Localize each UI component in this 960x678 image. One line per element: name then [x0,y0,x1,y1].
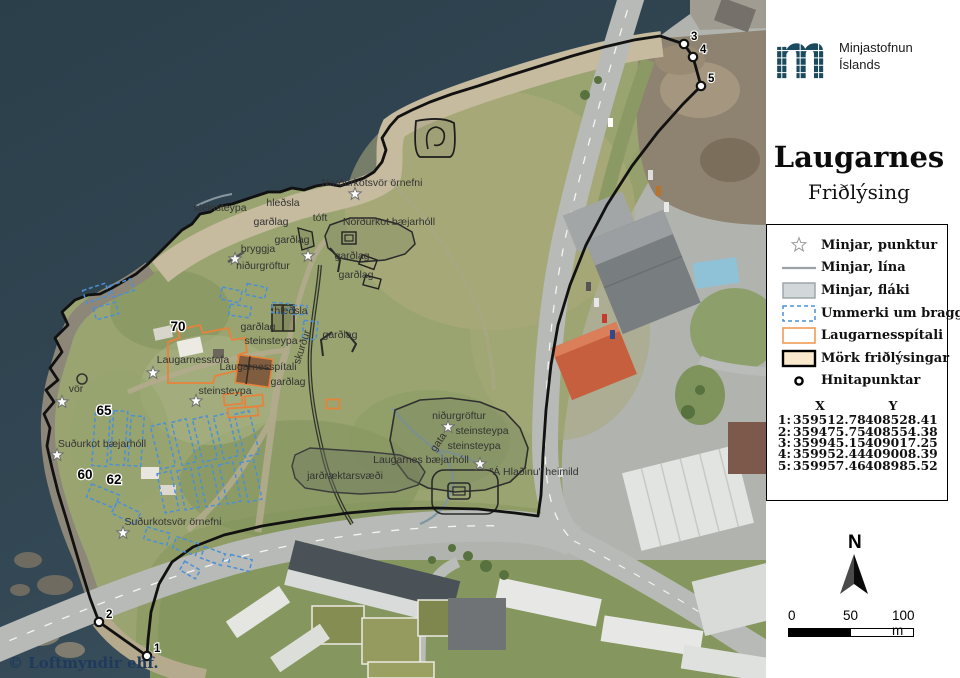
hnitapunktur-number: 5 [708,73,715,85]
legend-item-hnitapunktar: Hnitapunktar [767,370,947,393]
map-label: garðlag [338,269,373,281]
map-label: garðlag [270,376,305,388]
legend-item-lina: Minjar, lína [767,257,947,280]
legend: Minjar, punktur Minjar, lína Minjar, flá… [766,224,948,501]
map-label: garðlag [322,329,357,341]
line-icon [777,265,821,271]
map-label: steinsteypa [198,385,251,397]
map-label: garðlag [253,216,288,228]
agency-logo: Minjastofnun Íslands [774,34,913,80]
map-label: bryggja [241,243,276,255]
map-label: niðurgröftur [432,410,486,422]
hnitapunktur-marker [689,53,697,61]
star-icon [777,236,821,254]
coordinate-row: 5:359957.46408985.52 [767,460,947,471]
coordinate-table: XY 1:359512.78408528.41 2:359475.7540855… [767,399,947,471]
map-label: hleðsla [274,305,307,317]
boundary-icon [777,349,821,368]
map-label: Laugarnesstofa [157,354,230,366]
site-number: 60 [77,467,92,482]
hnitapunktur-marker [680,40,688,48]
scale-bar-rect [788,628,914,637]
legend-item-punktur: Minjar, punktur [767,234,947,257]
minjastofnun-logo-icon [774,34,830,80]
coordinate-header: XY [767,399,947,412]
map-sheet: Norðurkotsvör örnefnihleðslasteinsteypag… [0,0,960,678]
map-label: Laugarnesspítali [219,361,296,373]
map-label: Norðurkot bæjarhóll [343,216,435,228]
north-arrow: N [826,530,886,604]
map-label: garðlag [274,234,309,246]
map-label: steinsteypa [455,425,508,437]
map-label: Norðurkotsvör örnefni [322,177,423,189]
aerial-map: Norðurkotsvör örnefnihleðslasteinsteypag… [0,0,768,678]
legend-item-flaki: Minjar, fláki [767,279,947,302]
site-number: 62 [106,472,121,487]
dashed-blue-icon [777,305,821,322]
polygon-icon [777,282,821,299]
hnitapunktur-number: 3 [691,31,697,43]
legend-item-spitali: Laugarnesspítali [767,324,947,347]
legend-item-mork: Mörk friðlýsingar [767,347,947,370]
dirt-mound [700,138,760,182]
point-icon [777,375,821,387]
legend-item-bragga: Ummerki um bragga [767,302,947,325]
map-label: steinsteypa [447,440,500,452]
map-label: niðurgröftur [236,260,290,272]
orange-outline-icon [777,327,821,344]
map-label: garðlag [334,250,369,262]
hnitapunktur-marker [697,82,705,90]
map-label: Suðurkot bæjarhóll [58,438,146,450]
site-number: 70 [170,319,185,334]
copyright-text: © Loftmyndir ehf. [8,654,159,672]
page-title: Laugarnes [766,140,952,174]
map-label: "Á Hlaðinu" heimild [489,465,578,478]
info-panel: Minjastofnun Íslands Laugarnes Friðlýsin… [766,0,960,678]
map-label: Laugarnes bæjarhóll [373,454,469,466]
map-label: steinsteypa [244,335,297,347]
scale-bar: 0 50 100 m [788,608,920,644]
scale-ticks: 0 50 100 m [788,608,920,625]
map-label: Suðurkotsvör örnefni [125,516,222,528]
hnitapunktur-number: 4 [700,44,707,56]
map-label: tóft [313,212,328,224]
agency-name: Minjastofnun Íslands [839,40,913,74]
north-label: N [848,532,862,553]
map-label: garðlag [240,321,275,333]
hnitapunktur-marker [95,618,103,626]
site-number: 65 [96,403,112,418]
map-label: steinsteypa [193,202,246,214]
map-label: hleðsla [266,197,299,209]
map-label: vör [69,383,84,395]
hnitapunktur-number: 2 [106,609,112,621]
map-label: jarðræktarsvæði [306,470,383,482]
page-subtitle: Friðlýsing [766,180,952,204]
